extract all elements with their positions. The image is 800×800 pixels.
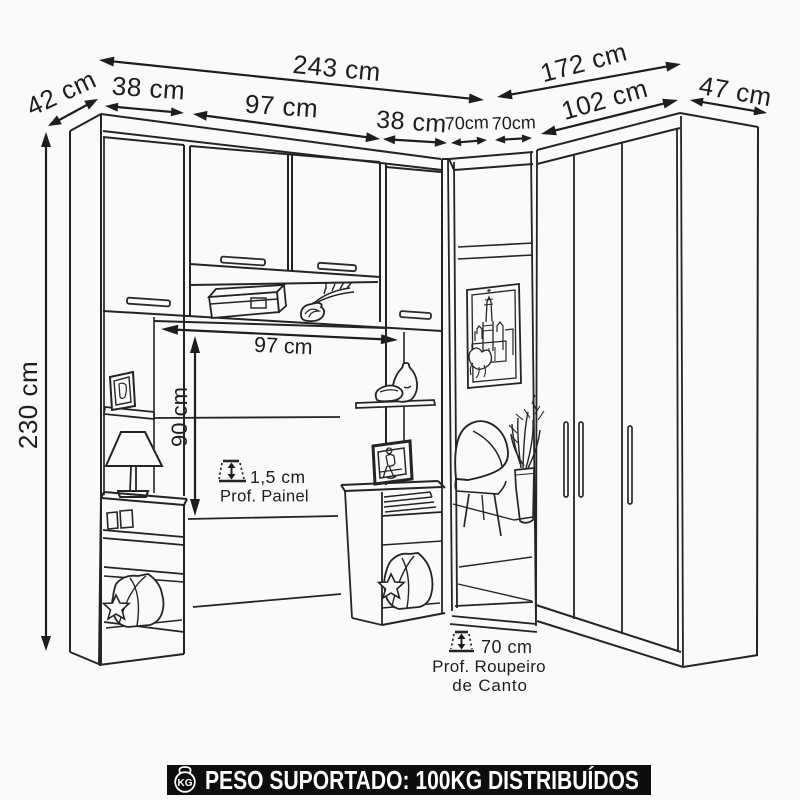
svg-text:de Canto: de Canto xyxy=(452,676,527,695)
svg-text:Prof. Roupeiro: Prof. Roupeiro xyxy=(432,657,546,676)
svg-text:70cm: 70cm xyxy=(444,112,489,134)
svg-text:230 cm: 230 cm xyxy=(13,361,43,449)
svg-text:PESO SUPORTADO: 100KG DISTRIBU: PESO SUPORTADO: 100KG DISTRIBUÍDOS xyxy=(205,766,639,795)
svg-text:KG: KG xyxy=(178,778,193,789)
svg-text:Prof. Painel: Prof. Painel xyxy=(220,488,309,506)
svg-text:38 cm: 38 cm xyxy=(375,106,447,139)
svg-text:70cm: 70cm xyxy=(491,112,536,134)
svg-text:38 cm: 38 cm xyxy=(111,71,186,106)
svg-text:70 cm: 70 cm xyxy=(481,637,533,657)
svg-text:1,5 cm: 1,5 cm xyxy=(250,467,306,487)
svg-text:97 cm: 97 cm xyxy=(254,333,314,360)
svg-text:97 cm: 97 cm xyxy=(244,89,319,124)
